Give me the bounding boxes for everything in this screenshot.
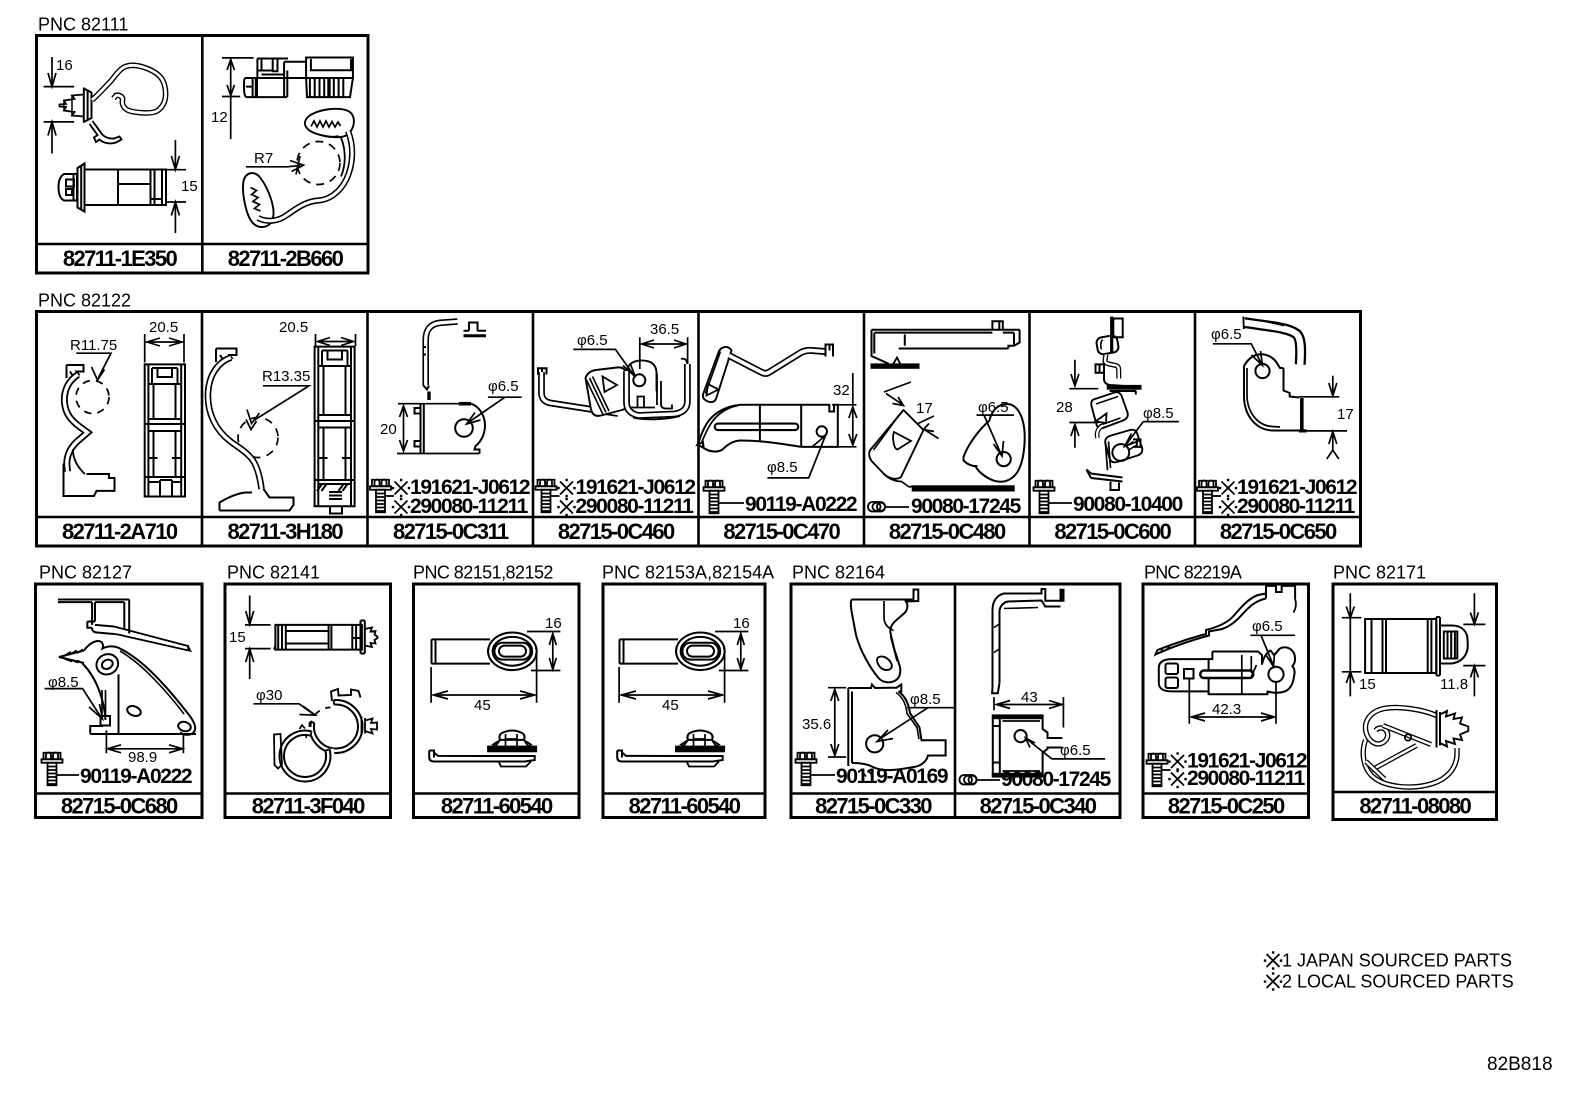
- svg-text:PNC 82153A,82154A: PNC 82153A,82154A: [602, 563, 774, 583]
- svg-text:12: 12: [211, 109, 228, 126]
- svg-text:290080-11211: 290080-11211: [1187, 767, 1306, 790]
- svg-text:82715-0C680: 82715-0C680: [61, 794, 178, 819]
- svg-text:290080-11211: 290080-11211: [1237, 495, 1356, 518]
- svg-text:PNC 82219A: PNC 82219A: [1144, 563, 1242, 583]
- svg-text:42.3: 42.3: [1212, 701, 1241, 718]
- svg-text:82711-3F040: 82711-3F040: [252, 794, 365, 819]
- svg-text:φ30: φ30: [256, 687, 282, 704]
- svg-text:82711-3H180: 82711-3H180: [227, 519, 343, 544]
- svg-text:φ6.5: φ6.5: [1060, 742, 1091, 759]
- svg-text:90080-10400: 90080-10400: [1073, 493, 1183, 516]
- svg-text:82715-0C250: 82715-0C250: [1168, 794, 1285, 819]
- svg-text:82715-0C460: 82715-0C460: [558, 519, 675, 544]
- svg-text:PNC 82111: PNC 82111: [38, 15, 128, 35]
- svg-text:82711-60540: 82711-60540: [441, 794, 553, 819]
- svg-text:90080-17245: 90080-17245: [911, 495, 1022, 518]
- svg-text:2 LOCAL SOURCED PARTS: 2 LOCAL SOURCED PARTS: [1282, 972, 1514, 992]
- svg-text:φ6.5: φ6.5: [1211, 326, 1242, 343]
- svg-text:R7: R7: [254, 150, 273, 167]
- svg-text:82711-08080: 82711-08080: [1359, 794, 1471, 819]
- svg-text:PNC 82164: PNC 82164: [792, 563, 885, 583]
- svg-text:17: 17: [916, 400, 933, 417]
- svg-text:82715-0C650: 82715-0C650: [1220, 519, 1337, 544]
- svg-text:82711-2B660: 82711-2B660: [228, 246, 344, 271]
- svg-text:16: 16: [733, 615, 750, 632]
- svg-text:φ8.5: φ8.5: [767, 459, 798, 476]
- svg-text:82B818: 82B818: [1487, 1054, 1553, 1075]
- svg-text:36.5: 36.5: [650, 321, 679, 338]
- svg-text:82711-1E350: 82711-1E350: [63, 246, 178, 271]
- svg-text:82715-0C330: 82715-0C330: [815, 794, 932, 819]
- svg-text:PNC 82151,82152: PNC 82151,82152: [413, 563, 553, 583]
- svg-text:20: 20: [380, 421, 397, 438]
- svg-text:43: 43: [1021, 689, 1038, 706]
- svg-text:35.6: 35.6: [802, 716, 831, 733]
- svg-text:PNC 82171: PNC 82171: [1333, 563, 1426, 583]
- svg-text:φ6.5: φ6.5: [577, 332, 608, 349]
- svg-text:16: 16: [56, 57, 73, 74]
- svg-text:φ8.5: φ8.5: [910, 691, 941, 708]
- svg-text:15: 15: [181, 178, 198, 195]
- svg-text:17: 17: [1337, 406, 1354, 423]
- svg-text:82715-0C600: 82715-0C600: [1054, 519, 1171, 544]
- svg-text:45: 45: [474, 697, 491, 714]
- svg-text:32: 32: [833, 382, 850, 399]
- svg-text:290080-11211: 290080-11211: [576, 495, 695, 518]
- svg-text:15: 15: [229, 629, 246, 646]
- svg-text:82715-0C480: 82715-0C480: [889, 519, 1006, 544]
- svg-text:φ6.5: φ6.5: [1252, 618, 1283, 635]
- svg-text:16: 16: [545, 615, 562, 632]
- svg-text:82715-0C340: 82715-0C340: [980, 794, 1097, 819]
- svg-text:PNC 82141: PNC 82141: [227, 563, 320, 583]
- svg-text:φ6.5: φ6.5: [978, 399, 1009, 416]
- svg-text:98.9: 98.9: [128, 749, 157, 766]
- svg-text:1 JAPAN SOURCED PARTS: 1 JAPAN SOURCED PARTS: [1282, 951, 1512, 971]
- svg-text:R11.75: R11.75: [70, 337, 117, 354]
- svg-text:82711-60540: 82711-60540: [629, 794, 741, 819]
- svg-text:82711-2A710: 82711-2A710: [62, 519, 178, 544]
- svg-text:82715-0C470: 82715-0C470: [723, 519, 840, 544]
- svg-text:45: 45: [662, 697, 679, 714]
- svg-text:90119-A0222: 90119-A0222: [80, 765, 192, 788]
- svg-text:290080-11211: 290080-11211: [410, 495, 529, 518]
- svg-text:11.8: 11.8: [1440, 676, 1468, 693]
- svg-text:28: 28: [1056, 399, 1073, 416]
- svg-text:15: 15: [1359, 676, 1376, 693]
- svg-text:20.5: 20.5: [279, 319, 308, 336]
- svg-text:φ6.5: φ6.5: [488, 378, 519, 395]
- svg-text:R13.35: R13.35: [262, 368, 310, 385]
- svg-text:20.5: 20.5: [149, 319, 178, 336]
- svg-text:PNC 82127: PNC 82127: [39, 563, 132, 583]
- svg-text:90119-A0222: 90119-A0222: [745, 493, 857, 516]
- svg-text:82715-0C311: 82715-0C311: [393, 519, 509, 544]
- svg-text:PNC 82122: PNC 82122: [38, 291, 131, 311]
- svg-text:90119-A0169: 90119-A0169: [836, 765, 948, 788]
- svg-text:φ8.5: φ8.5: [1143, 405, 1174, 422]
